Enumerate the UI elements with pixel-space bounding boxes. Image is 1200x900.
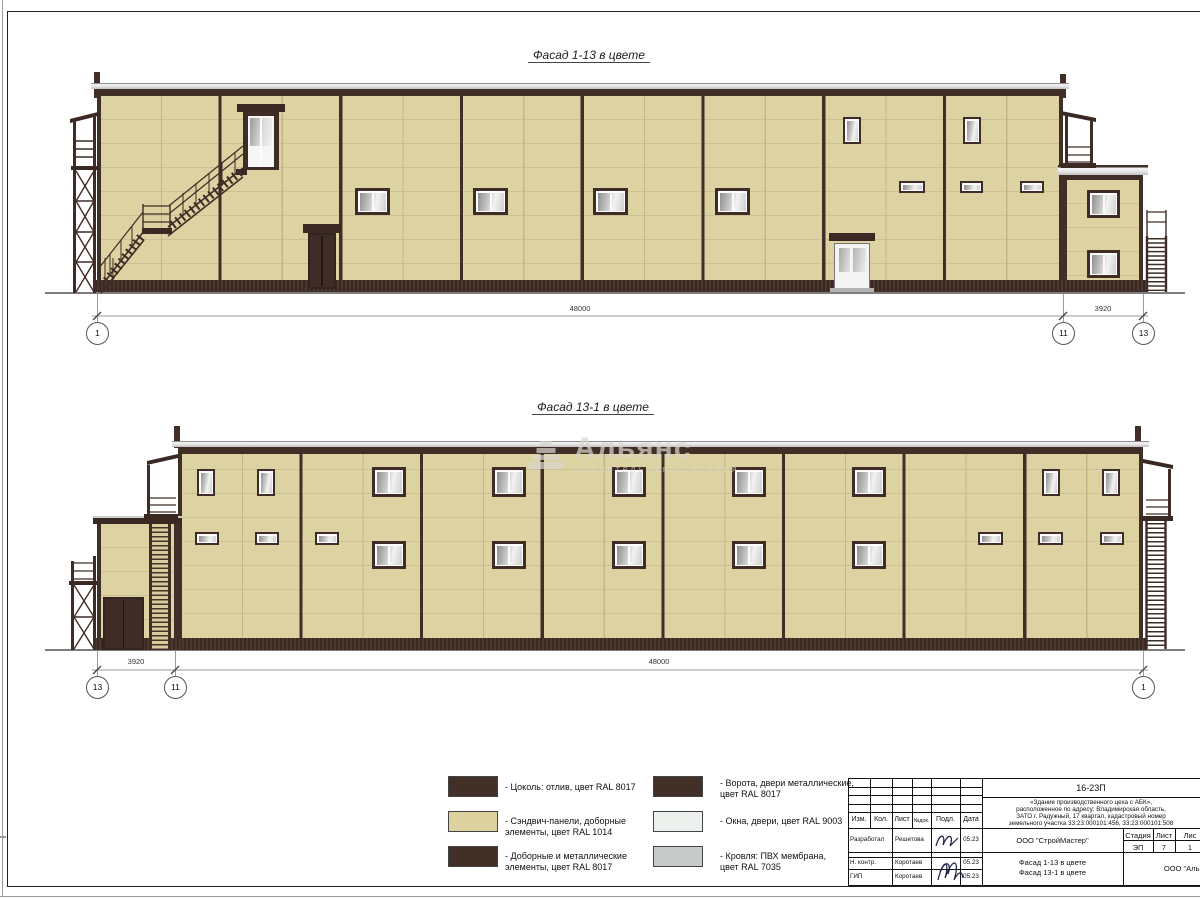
row-role: Н. контр. xyxy=(850,859,876,866)
sheets-label: Лис xyxy=(1175,831,1200,840)
axis-bubble: 1 xyxy=(86,322,109,345)
window xyxy=(372,467,406,497)
project-desc: ЗАТО г. Радужный, 17 квартал, кадастровы… xyxy=(982,813,1200,820)
window xyxy=(593,188,628,215)
window xyxy=(852,467,886,497)
watermark-name: Альянс xyxy=(574,432,691,466)
window xyxy=(1042,469,1060,496)
facade-13-1-drawing: Фасад 13-1 в цвете 3920 48000 13 11 1 xyxy=(0,360,1200,720)
legend-label: - Сэндвич-панели, доборныеэлементы, цвет… xyxy=(505,816,626,837)
axis-bubble: 11 xyxy=(164,676,187,699)
window xyxy=(899,181,925,193)
legend-swatch xyxy=(448,776,498,797)
row-role: Разработал xyxy=(850,836,884,843)
col-kol: Кол. xyxy=(870,816,892,823)
stage-value: ЭП xyxy=(1123,843,1153,852)
legend-swatch xyxy=(653,776,703,797)
dimension-3920: 3920 xyxy=(1063,304,1143,313)
legend-label: - Окна, двери, цвет RAL 9003 xyxy=(720,816,842,827)
sheet-title-line: Фасад 13-1 в цвете xyxy=(982,868,1123,877)
wall-ladder xyxy=(149,524,171,649)
col-data: Дата xyxy=(960,816,982,823)
window xyxy=(492,541,526,569)
row-date: 05.23 xyxy=(960,873,982,880)
legend-label: - Доборные и металлическиеэлементы, цвет… xyxy=(505,851,627,872)
org2-name: ООО "Альянс" xyxy=(1123,864,1200,873)
project-desc: «Здание производственного цеха с АБК», xyxy=(982,799,1200,806)
annex-plinth xyxy=(1059,280,1147,292)
window xyxy=(473,188,508,215)
window xyxy=(315,532,339,545)
window xyxy=(612,541,646,569)
window xyxy=(257,469,275,496)
legend-label: - Ворота, двери металлические,цвет RAL 8… xyxy=(720,778,854,799)
axis-bubble: 1 xyxy=(1132,676,1155,699)
legend-label: - Цоколь: отлив, цвет RAL 8017 xyxy=(505,782,636,793)
org-name: ООО "СтройМастер" xyxy=(982,836,1123,845)
window xyxy=(852,541,886,569)
row-name: Коротаев xyxy=(895,859,922,866)
window xyxy=(1102,469,1120,496)
entrance-door xyxy=(834,243,870,290)
sheet-fold-mark xyxy=(0,836,6,838)
window xyxy=(715,188,750,215)
dimension-48000: 48000 xyxy=(175,657,1143,666)
ground-line xyxy=(45,292,1185,294)
axis-bubble: 13 xyxy=(1132,322,1155,345)
row-name: Решетова xyxy=(895,836,924,843)
window xyxy=(195,532,219,545)
window xyxy=(1038,532,1063,545)
col-list: Лист xyxy=(892,816,912,823)
sheet-bottom-edge xyxy=(0,896,1200,897)
facade1-title: Фасад 1-13 в цвете xyxy=(528,48,650,63)
sheet-value: 7 xyxy=(1153,843,1175,852)
doc-number: 16-23П xyxy=(982,783,1200,793)
axis-bubble: 11 xyxy=(1052,322,1075,345)
sheets-value: 1 xyxy=(1175,843,1200,852)
window xyxy=(255,532,279,545)
door-canopy xyxy=(829,233,875,241)
window xyxy=(960,181,983,193)
row-date: 05.23 xyxy=(960,836,982,843)
facade2-title: Фасад 13-1 в цвете xyxy=(532,400,654,415)
col-ndok: №док. xyxy=(912,818,931,824)
project-desc: земельного участка 33:23:000101:456, 33:… xyxy=(982,820,1200,827)
window xyxy=(1087,250,1120,278)
window xyxy=(1020,181,1044,193)
window xyxy=(1087,190,1120,218)
watermark-subtitle: строительная компания xyxy=(577,464,740,474)
col-izm: Изм. xyxy=(848,816,870,823)
door-canopy xyxy=(303,224,341,233)
annex-roof-band xyxy=(1058,165,1148,175)
window xyxy=(355,188,390,215)
row-date: 05.23 xyxy=(960,859,982,866)
window xyxy=(843,117,861,144)
legend-label: - Кровля: ПВХ мембрана,цвет RAL 7035 xyxy=(720,851,826,872)
sheet-label: Лист xyxy=(1153,831,1175,840)
parapet-band xyxy=(97,89,1063,96)
metal-door xyxy=(308,233,336,289)
legend-swatch xyxy=(448,846,498,867)
legend-swatch xyxy=(653,811,703,832)
watermark-logo-icon xyxy=(528,434,568,474)
plinth-band xyxy=(176,638,1147,650)
door-threshold xyxy=(830,288,874,292)
watermark: Альянс строительная компания xyxy=(528,430,788,482)
sheet-title-line: Фасад 1-13 в цвете xyxy=(982,858,1123,867)
dimension-3920: 3920 xyxy=(97,657,175,666)
window xyxy=(197,469,215,496)
legend-swatch xyxy=(653,846,703,867)
axis-bubble: 13 xyxy=(86,676,109,699)
drawing-sheet: { "sheet": { "facade1": { "title": "Фаса… xyxy=(0,0,1200,900)
annex-gate-door xyxy=(103,597,144,650)
window xyxy=(978,532,1003,545)
facade-1-13-drawing: Фасад 1-13 в цвете 48000 3920 xyxy=(0,0,1200,360)
upper-exit-door xyxy=(243,111,279,170)
annex-roof xyxy=(93,516,182,524)
row-name: Коротаев xyxy=(895,873,922,880)
window xyxy=(963,117,981,144)
window xyxy=(732,541,766,569)
window xyxy=(1100,532,1124,545)
window xyxy=(492,467,526,497)
col-podl: Подл. xyxy=(931,816,960,823)
row-role: ГИП xyxy=(850,873,862,880)
dimension-48000: 48000 xyxy=(97,304,1063,313)
plinth-band xyxy=(95,280,1065,292)
window xyxy=(372,541,406,569)
stage-label: Стадия xyxy=(1123,831,1153,840)
project-desc: расположенное по адресу: Владимирская об… xyxy=(982,806,1200,813)
legend-swatch xyxy=(448,811,498,832)
